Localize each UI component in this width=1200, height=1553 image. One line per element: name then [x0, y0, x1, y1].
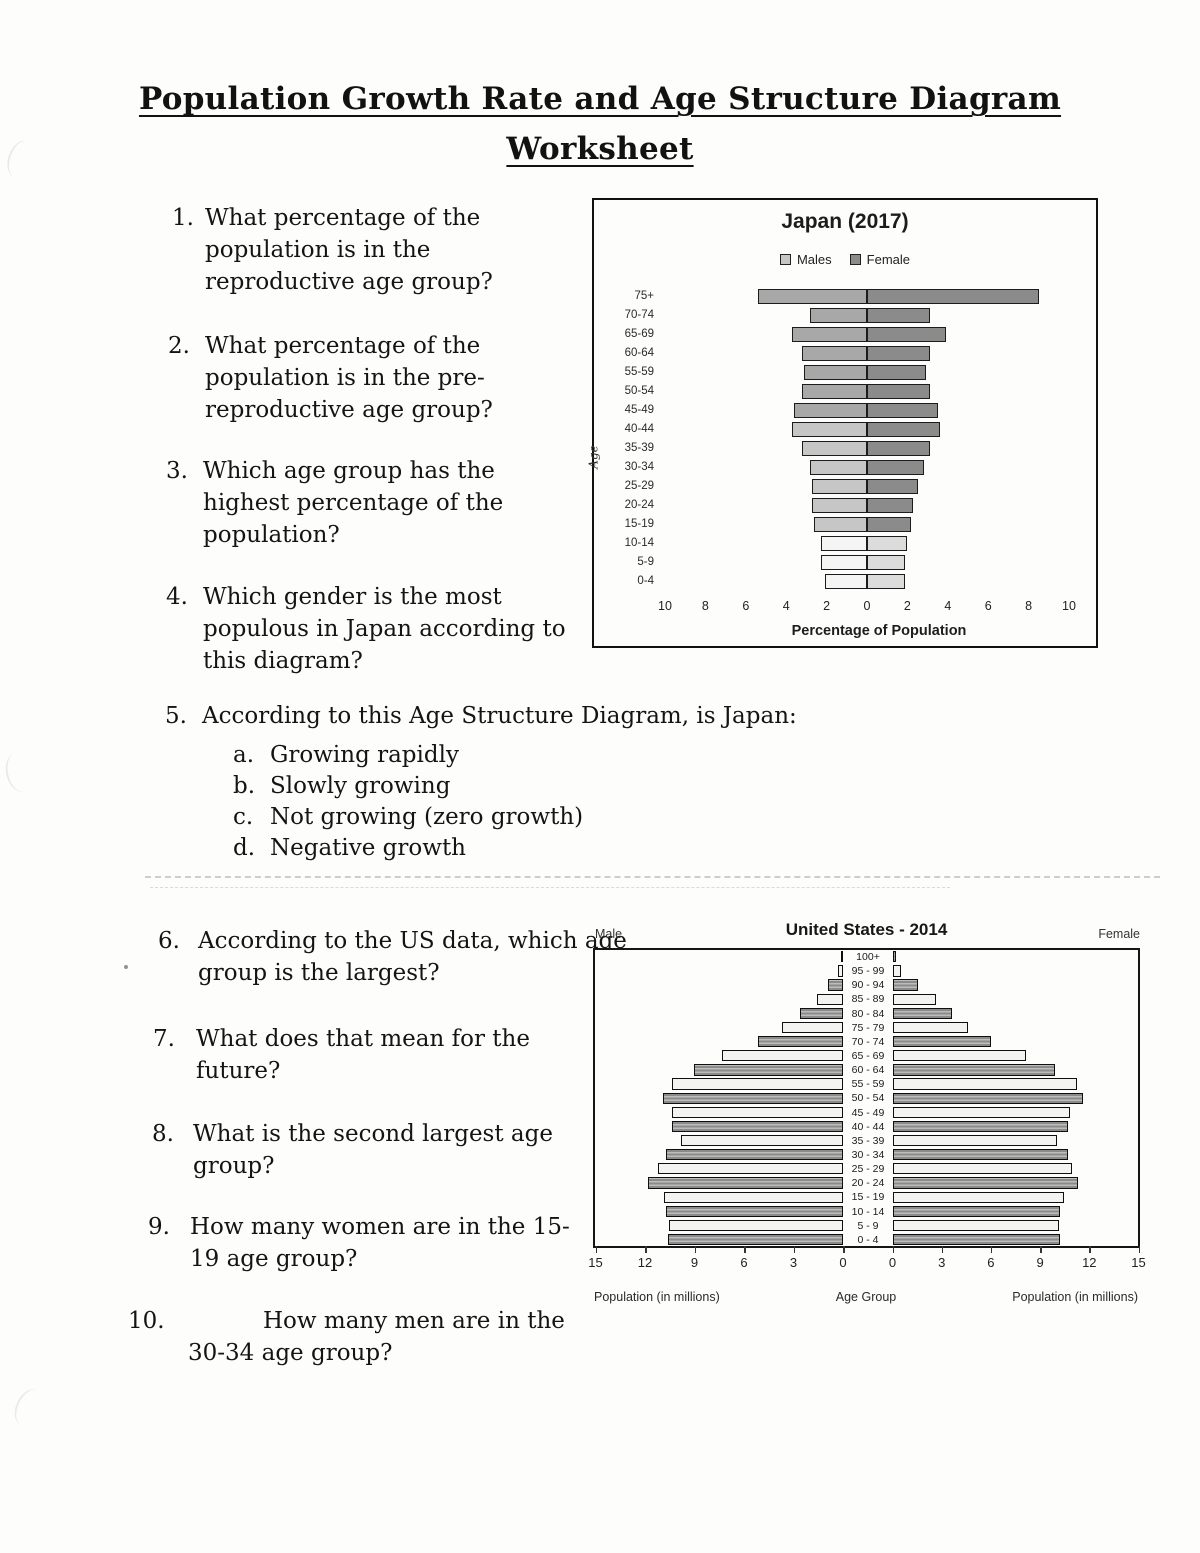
male-bar [722, 1050, 843, 1061]
us-male-bar-area [595, 992, 843, 1006]
us-age-group-label: 75 - 79 [843, 1021, 893, 1035]
option-d-letter: d. [233, 833, 270, 864]
japan-age-label: 40-44 [594, 420, 662, 439]
us-x-axis: 1512963003691215 [593, 1246, 1140, 1280]
us-pyramid-row: 10 - 14 [595, 1205, 1138, 1219]
us-male-bar-area [595, 1106, 843, 1120]
us-pyramid-row: 70 - 74 [595, 1035, 1138, 1049]
us-female-bar-area [893, 1148, 1138, 1162]
male-bar [828, 979, 843, 990]
male-bar [804, 365, 867, 380]
us-female-bar-area [893, 964, 1138, 978]
us-pyramid-row: 100+ [595, 950, 1138, 964]
japan-age-label: 10-14 [594, 534, 662, 553]
us-age-group-label: 70 - 74 [843, 1035, 893, 1049]
us-axis-tick [843, 1246, 845, 1253]
us-chart-title: United States - 2014 [593, 920, 1140, 940]
us-right-axis-caption: Population (in millions) [1012, 1290, 1138, 1304]
male-bar [668, 1234, 843, 1245]
japan-x-axis-label: Percentage of Population [662, 623, 1096, 639]
us-axis-tick [695, 1246, 697, 1253]
male-bar [802, 384, 867, 399]
us-axis-captions: Population (in millions) Age Group Popul… [0, 1290, 1200, 1310]
male-bar [681, 1135, 843, 1146]
worksheet-page: Population Growth Rate and Age Structure… [0, 0, 1200, 1553]
japan-pyramid-row: 20-24 [594, 496, 1096, 515]
japan-age-label: 60-64 [594, 344, 662, 363]
female-bar [867, 365, 926, 380]
japan-age-label: 5-9 [594, 553, 662, 572]
female-bar [867, 308, 930, 323]
female-bar [893, 1050, 1026, 1061]
female-bar [867, 346, 930, 361]
page-title-line1: Population Growth Rate and Age Structure… [0, 74, 1200, 124]
male-bar [792, 327, 867, 342]
us-age-group-label: 10 - 14 [843, 1205, 893, 1219]
male-bar [810, 308, 867, 323]
page-title-line2: Worksheet [0, 124, 1200, 174]
question-5-option-c: c.Not growing (zero growth) [233, 802, 862, 833]
male-bar [666, 1206, 843, 1217]
us-pyramid-row: 5 - 9 [595, 1219, 1138, 1233]
question-5: 5. According to this Age Structure Diagr… [165, 700, 862, 864]
japan-pyramid-plot: 75+70-7465-6960-6455-5950-5445-4940-4435… [594, 287, 1096, 591]
japan-pyramid-row: 65-69 [594, 325, 1096, 344]
question-8-text: What is the second largest age group? [193, 1118, 633, 1182]
us-age-group-label: 40 - 44 [843, 1120, 893, 1134]
us-axis-tick-label: 15 [588, 1255, 602, 1270]
question-5-option-d: d.Negative growth [233, 833, 862, 864]
japan-bar-area [662, 515, 1096, 534]
us-male-bar-area [595, 950, 843, 964]
male-bar [841, 951, 843, 962]
us-female-bar-area [893, 1233, 1138, 1247]
us-axis-tick-label: 0 [839, 1255, 846, 1270]
us-axis-tick [991, 1246, 993, 1253]
male-bar [669, 1220, 843, 1231]
scan-margin-mark [9, 1384, 51, 1432]
female-bar [893, 1220, 1059, 1231]
female-bar [893, 1064, 1055, 1075]
us-female-bar-area [893, 950, 1138, 964]
us-pyramid-row: 45 - 49 [595, 1106, 1138, 1120]
us-pyramid-row: 25 - 29 [595, 1162, 1138, 1176]
female-bar [893, 1121, 1068, 1132]
japan-x-tick-label: 4 [783, 599, 790, 613]
us-female-bar-area [893, 1190, 1138, 1204]
us-age-group-label: 60 - 64 [843, 1063, 893, 1077]
us-pyramid-row: 20 - 24 [595, 1176, 1138, 1190]
japan-pyramid-row: 60-64 [594, 344, 1096, 363]
us-pyramid-row: 65 - 69 [595, 1049, 1138, 1063]
japan-age-label: 45-49 [594, 401, 662, 420]
japan-bar-area [662, 458, 1096, 477]
us-axis-tick-label: 0 [889, 1255, 896, 1270]
japan-bar-area [662, 553, 1096, 572]
us-male-bar-area [595, 1190, 843, 1204]
male-bar [694, 1064, 843, 1075]
female-bar [893, 1192, 1064, 1203]
us-male-bar-area [595, 1091, 843, 1105]
us-pyramid-row: 30 - 34 [595, 1148, 1138, 1162]
female-bar [893, 1093, 1083, 1104]
option-c-letter: c. [233, 802, 270, 833]
us-age-group-label: 0 - 4 [843, 1233, 893, 1247]
us-male-bar-area [595, 1077, 843, 1091]
female-bar [867, 536, 907, 551]
question-10: 10.How many men are in the 30-34 age gro… [188, 1305, 568, 1369]
us-male-bar-area [595, 1219, 843, 1233]
us-female-bar-area [893, 1035, 1138, 1049]
us-female-header: Female [1098, 927, 1140, 941]
female-bar [893, 994, 936, 1005]
japan-pyramid-row: 10-14 [594, 534, 1096, 553]
option-a-letter: a. [233, 740, 270, 771]
japan-chart-title: Japan (2017) [594, 210, 1096, 234]
japan-pyramid-row: 75+ [594, 287, 1096, 306]
japan-bar-area [662, 325, 1096, 344]
us-male-bar-area [595, 1021, 843, 1035]
question-5-text: According to this Age Structure Diagram,… [202, 700, 862, 732]
us-age-group-label: 95 - 99 [843, 964, 893, 978]
us-female-bar-area [893, 1021, 1138, 1035]
question-6-number: 6. [158, 925, 180, 957]
us-age-group-label: 15 - 19 [843, 1190, 893, 1204]
question-5-options: a.Growing rapidly b.Slowly growing c.Not… [196, 740, 862, 864]
japan-bar-area [662, 363, 1096, 382]
female-bar [867, 327, 946, 342]
us-axis-tick [942, 1246, 944, 1253]
male-bar [758, 289, 867, 304]
us-female-bar-area [893, 1077, 1138, 1091]
question-7-text: What does that mean for the future? [196, 1023, 586, 1087]
question-3-text: Which age group has the highest percenta… [203, 455, 548, 551]
us-pyramid-row: 85 - 89 [595, 992, 1138, 1006]
male-bar [810, 460, 867, 475]
us-male-bar-area [595, 1134, 843, 1148]
us-axis-tick [893, 1246, 895, 1253]
us-age-group-label: 65 - 69 [843, 1049, 893, 1063]
japan-pyramid-row: 5-9 [594, 553, 1096, 572]
us-female-bar-area [893, 978, 1138, 992]
option-a-text: Growing rapidly [270, 742, 459, 768]
us-axis-tick [1089, 1246, 1091, 1253]
question-2: 2. What percentage of the population is … [168, 330, 535, 426]
male-bar [672, 1107, 843, 1118]
japan-age-label: 70-74 [594, 306, 662, 325]
us-pyramid-row: 50 - 54 [595, 1091, 1138, 1105]
japan-pyramid-row: 50-54 [594, 382, 1096, 401]
question-6-text: According to the US data, which age grou… [198, 925, 628, 989]
us-axis-tick-label: 12 [1082, 1255, 1096, 1270]
us-male-bar-area [595, 1120, 843, 1134]
question-2-text: What percentage of the population is in … [205, 330, 535, 426]
japan-bar-area [662, 344, 1096, 363]
us-axis-tick [794, 1246, 796, 1253]
us-axis-tick-label: 9 [1036, 1255, 1043, 1270]
us-female-bar-area [893, 992, 1138, 1006]
us-pyramid-row: 90 - 94 [595, 978, 1138, 992]
japan-age-label: 50-54 [594, 382, 662, 401]
male-bar [821, 555, 867, 570]
us-female-bar-area [893, 1219, 1138, 1233]
legend-item-female: Female [850, 252, 910, 267]
female-legend-swatch-icon [850, 254, 861, 265]
us-age-group-label: 55 - 59 [843, 1077, 893, 1091]
us-center-axis-caption: Age Group [836, 1290, 896, 1304]
male-bar [825, 574, 867, 589]
japan-pyramid-row: 25-29 [594, 477, 1096, 496]
question-8-number: 8. [152, 1118, 174, 1150]
scan-fold-line-secondary [150, 887, 950, 888]
male-bar [802, 441, 867, 456]
question-6: 6. According to the US data, which age g… [158, 925, 628, 989]
male-bar [792, 422, 867, 437]
us-male-bar-area [595, 1233, 843, 1247]
us-female-bar-area [893, 1007, 1138, 1021]
female-legend-label: Female [867, 252, 910, 267]
us-age-group-label: 50 - 54 [843, 1091, 893, 1105]
female-bar [867, 403, 938, 418]
us-age-group-label: 30 - 34 [843, 1148, 893, 1162]
question-9-number: 9. [148, 1211, 170, 1243]
japan-x-tick-label: 10 [1062, 599, 1076, 613]
us-age-group-label: 85 - 89 [843, 992, 893, 1006]
us-axis-tick-label: 12 [638, 1255, 652, 1270]
us-female-bar-area [893, 1049, 1138, 1063]
japan-age-label: 25-29 [594, 477, 662, 496]
japan-pyramid-row: 70-74 [594, 306, 1096, 325]
japan-bar-area [662, 287, 1096, 306]
female-bar [893, 1206, 1060, 1217]
us-pyramid-row: 35 - 39 [595, 1134, 1138, 1148]
question-4-number: 4. [166, 581, 188, 613]
japan-pyramid-row: 45-49 [594, 401, 1096, 420]
us-age-group-label: 35 - 39 [843, 1134, 893, 1148]
japan-age-label: 30-34 [594, 458, 662, 477]
us-axis-tick [645, 1246, 647, 1253]
us-pyramid-row: 40 - 44 [595, 1120, 1138, 1134]
japan-age-label: 75+ [594, 287, 662, 306]
japan-bar-area [662, 439, 1096, 458]
option-b-text: Slowly growing [270, 773, 450, 799]
female-bar [867, 460, 924, 475]
male-bar [812, 498, 867, 513]
female-bar [893, 1022, 968, 1033]
us-age-group-label: 25 - 29 [843, 1162, 893, 1176]
us-male-bar-area [595, 1148, 843, 1162]
male-bar [812, 479, 867, 494]
female-bar [893, 1036, 991, 1047]
us-age-group-label: 5 - 9 [843, 1219, 893, 1233]
japan-x-tick-label: 2 [823, 599, 830, 613]
male-bar [814, 517, 867, 532]
japan-x-tick-label: 8 [1025, 599, 1032, 613]
legend-item-males: Males [780, 252, 832, 267]
male-bar [648, 1177, 843, 1188]
japan-pyramid-row: 40-44 [594, 420, 1096, 439]
us-pyramid-row: 55 - 59 [595, 1077, 1138, 1091]
us-axis-tick-label: 3 [790, 1255, 797, 1270]
female-bar [893, 1135, 1057, 1146]
us-female-bar-area [893, 1134, 1138, 1148]
us-female-bar-area [893, 1162, 1138, 1176]
female-bar [867, 574, 905, 589]
us-pyramid-row: 60 - 64 [595, 1063, 1138, 1077]
us-pyramid-chart: 100+95 - 9990 - 9485 - 8980 - 8475 - 797… [593, 948, 1140, 1248]
male-bar [817, 994, 843, 1005]
japan-x-tick-label: 10 [658, 599, 672, 613]
japan-age-label: 20-24 [594, 496, 662, 515]
us-axis-tick-label: 6 [987, 1255, 994, 1270]
female-bar [893, 979, 918, 990]
us-age-group-label: 80 - 84 [843, 1007, 893, 1021]
us-male-bar-area [595, 1035, 843, 1049]
japan-age-label: 0-4 [594, 572, 662, 591]
japan-x-tick-label: 6 [742, 599, 749, 613]
question-2-number: 2. [168, 330, 190, 362]
scan-fold-line [145, 876, 1160, 878]
japan-x-tick-label: 2 [904, 599, 911, 613]
japan-pyramid-chart: Japan (2017) Males Female Age 75+70-7465… [592, 198, 1098, 648]
male-bar [802, 346, 867, 361]
us-pyramid-row: 15 - 19 [595, 1190, 1138, 1204]
question-5-option-b: b.Slowly growing [233, 771, 862, 802]
question-4-text: Which gender is the most populous in Jap… [203, 581, 603, 677]
female-bar [893, 1234, 1060, 1245]
us-axis-tick-label: 9 [691, 1255, 698, 1270]
japan-bar-area [662, 420, 1096, 439]
us-female-bar-area [893, 1091, 1138, 1105]
us-male-bar-area [595, 1162, 843, 1176]
us-age-group-label: 20 - 24 [843, 1176, 893, 1190]
male-bar [666, 1149, 843, 1160]
japan-x-tick-label: 0 [864, 599, 871, 613]
us-axis-tick [1139, 1246, 1141, 1253]
japan-x-axis-ticks: 1086420246810 [662, 599, 1096, 615]
us-male-bar-area [595, 1063, 843, 1077]
question-7: 7. What does that mean for the future? [153, 1023, 586, 1087]
option-b-letter: b. [233, 771, 270, 802]
scan-margin-mark [2, 750, 38, 795]
us-axis-tick [596, 1246, 598, 1253]
question-3-number: 3. [166, 455, 188, 487]
us-male-bar-area [595, 978, 843, 992]
japan-age-label: 35-39 [594, 439, 662, 458]
female-bar [893, 1078, 1077, 1089]
female-bar [867, 555, 905, 570]
us-age-group-label: 45 - 49 [843, 1106, 893, 1120]
us-female-bar-area [893, 1106, 1138, 1120]
us-axis-tick-label: 3 [938, 1255, 945, 1270]
male-bar [800, 1008, 843, 1019]
us-axis-tick [744, 1246, 746, 1253]
japan-pyramid-row: 0-4 [594, 572, 1096, 591]
male-bar [672, 1078, 843, 1089]
japan-age-label: 65-69 [594, 325, 662, 344]
female-bar [893, 1107, 1070, 1118]
female-bar [867, 384, 930, 399]
question-8: 8. What is the second largest age group? [152, 1118, 633, 1182]
female-bar [867, 441, 930, 456]
female-bar [867, 479, 918, 494]
us-female-bar-area [893, 1120, 1138, 1134]
option-c-text: Not growing (zero growth) [270, 804, 583, 830]
option-d-text: Negative growth [270, 835, 466, 861]
male-bar [663, 1093, 843, 1104]
japan-bar-area [662, 306, 1096, 325]
question-4: 4. Which gender is the most populous in … [166, 581, 603, 677]
us-left-axis-caption: Population (in millions) [594, 1290, 720, 1304]
japan-bar-area [662, 572, 1096, 591]
male-bar [794, 403, 867, 418]
scan-stray-mark [124, 965, 128, 969]
japan-chart-legend: Males Female [594, 252, 1096, 267]
question-5-number: 5. [165, 700, 187, 732]
japan-pyramid-row: 35-39 [594, 439, 1096, 458]
us-male-bar-area [595, 964, 843, 978]
question-1: 1. What percentage of the population is … [172, 202, 505, 298]
japan-pyramid-row: 30-34 [594, 458, 1096, 477]
male-bar [758, 1036, 843, 1047]
question-1-text: What percentage of the population is in … [205, 202, 505, 298]
female-bar [893, 965, 901, 976]
female-bar [893, 1008, 952, 1019]
japan-pyramid-row: 55-59 [594, 363, 1096, 382]
female-bar [867, 289, 1039, 304]
us-male-bar-area [595, 1049, 843, 1063]
us-female-bar-area [893, 1205, 1138, 1219]
japan-bar-area [662, 496, 1096, 515]
male-bar [821, 536, 867, 551]
japan-x-tick-label: 8 [702, 599, 709, 613]
us-male-bar-area [595, 1205, 843, 1219]
japan-bar-area [662, 401, 1096, 420]
question-9: 9. How many women are in the 15-19 age g… [148, 1211, 580, 1275]
us-chart-header: Male United States - 2014 Female [593, 920, 1140, 946]
japan-age-label: 15-19 [594, 515, 662, 534]
question-7-number: 7. [153, 1023, 175, 1055]
us-male-bar-area [595, 1176, 843, 1190]
female-bar [893, 951, 896, 962]
japan-pyramid-row: 15-19 [594, 515, 1096, 534]
us-male-bar-area [595, 1007, 843, 1021]
female-bar [893, 1163, 1072, 1174]
us-female-bar-area [893, 1063, 1138, 1077]
japan-x-tick-label: 4 [944, 599, 951, 613]
female-bar [893, 1149, 1068, 1160]
male-bar [664, 1192, 843, 1203]
japan-age-label: 55-59 [594, 363, 662, 382]
male-bar [658, 1163, 843, 1174]
male-bar [672, 1121, 843, 1132]
us-female-bar-area [893, 1176, 1138, 1190]
female-bar [893, 1177, 1078, 1188]
page-title: Population Growth Rate and Age Structure… [0, 74, 1200, 174]
female-bar [867, 422, 940, 437]
japan-bar-area [662, 534, 1096, 553]
us-age-group-label: 100+ [843, 950, 893, 964]
question-9-text: How many women are in the 15-19 age grou… [190, 1211, 580, 1275]
us-pyramid-row: 95 - 99 [595, 964, 1138, 978]
japan-bar-area [662, 382, 1096, 401]
us-pyramid-row: 75 - 79 [595, 1021, 1138, 1035]
male-bar [782, 1022, 843, 1033]
female-bar [867, 498, 913, 513]
us-pyramid-row: 80 - 84 [595, 1007, 1138, 1021]
japan-bar-area [662, 477, 1096, 496]
males-legend-swatch-icon [780, 254, 791, 265]
